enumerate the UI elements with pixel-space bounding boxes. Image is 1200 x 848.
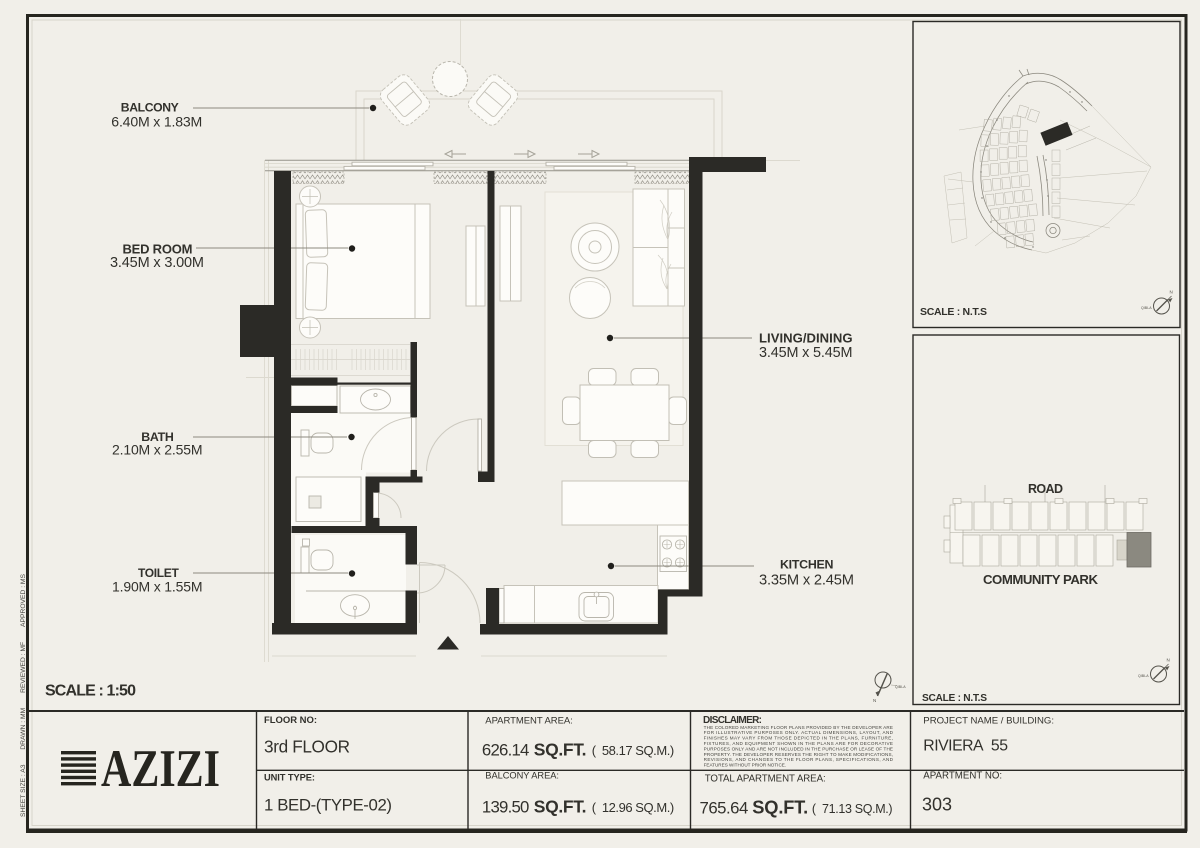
- svg-text:N: N: [1170, 290, 1173, 295]
- svg-text:AZIZI: AZIZI: [101, 740, 220, 798]
- svg-text:( 58.17 SQ.M.): ( 58.17 SQ.M.): [592, 743, 675, 758]
- svg-text:FOR ILLUSTRATIVE PURPOSES ONLY: FOR ILLUSTRATIVE PURPOSES ONLY. ACTUAL D…: [704, 730, 894, 735]
- svg-text:3.45M x 5.45M: 3.45M x 5.45M: [759, 345, 853, 361]
- svg-text:THE COLORED MARKETING FLOOR PL: THE COLORED MARKETING FLOOR PLANS PROVID…: [704, 725, 893, 730]
- svg-text:PROPERTY. THE DEVELOPER RESERV: PROPERTY. THE DEVELOPER RESERVES THE RIG…: [704, 752, 893, 757]
- svg-text:APARTMENT NO:: APARTMENT NO:: [923, 771, 1002, 782]
- svg-text:FIXTURES, AND EQUIPMENT SHOWN: FIXTURES, AND EQUIPMENT SHOWN IN THE PLA…: [704, 741, 893, 746]
- svg-text:SHEET SIZE : A3 DRAWN :: SHEET SIZE : A3 DRAWN : MM REVIEWED : MF…: [20, 574, 27, 817]
- svg-text:6.40M x 1.83M: 6.40M x 1.83M: [111, 114, 202, 130]
- svg-text:APARTMENT AREA:: APARTMENT AREA:: [485, 715, 573, 726]
- svg-text:N: N: [1167, 658, 1170, 663]
- svg-text:BALCONY AREA:: BALCONY AREA:: [485, 770, 559, 780]
- svg-text:KITCHEN: KITCHEN: [780, 558, 834, 572]
- svg-text:SCALE : 1:50: SCALE : 1:50: [45, 683, 136, 700]
- svg-text:139.50: 139.50: [482, 797, 530, 816]
- svg-text:SCALE : N.T.S: SCALE : N.T.S: [920, 306, 987, 318]
- svg-text:PROJECT NAME / BUILDING:: PROJECT NAME / BUILDING:: [923, 716, 1054, 727]
- svg-text:2.10M x 2.55M: 2.10M x 2.55M: [112, 442, 203, 458]
- svg-text:SQ.FT.: SQ.FT.: [534, 796, 587, 816]
- svg-text:( 71.13 SQ.M.): ( 71.13 SQ.M.): [812, 802, 893, 816]
- svg-text:TOTAL APARTMENT AREA:: TOTAL APARTMENT AREA:: [705, 773, 826, 784]
- svg-text:SQ.FT.: SQ.FT.: [534, 740, 587, 760]
- svg-text:( 12.96 SQ.M.): ( 12.96 SQ.M.): [592, 800, 675, 815]
- svg-text:PURPOSES ONLY AND ARE NOT INCL: PURPOSES ONLY AND ARE NOT INCLUDED IN TH…: [704, 746, 893, 751]
- svg-text:1 BED-(TYPE-02): 1 BED-(TYPE-02): [264, 796, 392, 815]
- svg-text:3.35M x 2.45M: 3.35M x 2.45M: [759, 573, 854, 589]
- svg-text:QIBLA: QIBLA: [1141, 306, 1152, 310]
- svg-text:SCALE : N.T.S: SCALE : N.T.S: [922, 693, 987, 704]
- svg-text:FINISHES MAY VARY FROM THOSE D: FINISHES MAY VARY FROM THOSE DEPICTED IN…: [704, 736, 893, 741]
- svg-text:UNIT TYPE:: UNIT TYPE:: [264, 773, 315, 783]
- svg-text:FEATURES WITHOUT PRIOR NOTICE.: FEATURES WITHOUT PRIOR NOTICE.: [704, 763, 787, 768]
- svg-text:SQ.FT.: SQ.FT.: [752, 796, 808, 817]
- svg-text:303: 303: [922, 795, 952, 815]
- svg-text:BALCONY: BALCONY: [121, 101, 179, 115]
- svg-text:LIVING/DINING: LIVING/DINING: [759, 331, 853, 346]
- svg-text:3.45M x 3.00M: 3.45M x 3.00M: [110, 255, 204, 271]
- svg-text:626.14: 626.14: [482, 741, 530, 760]
- svg-text:REVISIONS, AND CHANGES TO THE: REVISIONS, AND CHANGES TO THE FLOOR PLAN…: [704, 757, 894, 762]
- svg-text:FLOOR NO:: FLOOR NO:: [264, 715, 317, 726]
- svg-text:1.90M x 1.55M: 1.90M x 1.55M: [112, 579, 203, 595]
- svg-text:N: N: [873, 698, 876, 703]
- svg-text:RIVIERA 55: RIVIERA 55: [923, 738, 1008, 755]
- svg-text:ROAD: ROAD: [1028, 482, 1063, 496]
- svg-text:3rd FLOOR: 3rd FLOOR: [264, 737, 350, 757]
- svg-text:QIBLA: QIBLA: [1138, 674, 1149, 678]
- svg-text:QIBLA: QIBLA: [895, 685, 906, 689]
- svg-text:765.64: 765.64: [700, 798, 749, 817]
- svg-text:COMMUNITY PARK: COMMUNITY PARK: [983, 572, 1098, 587]
